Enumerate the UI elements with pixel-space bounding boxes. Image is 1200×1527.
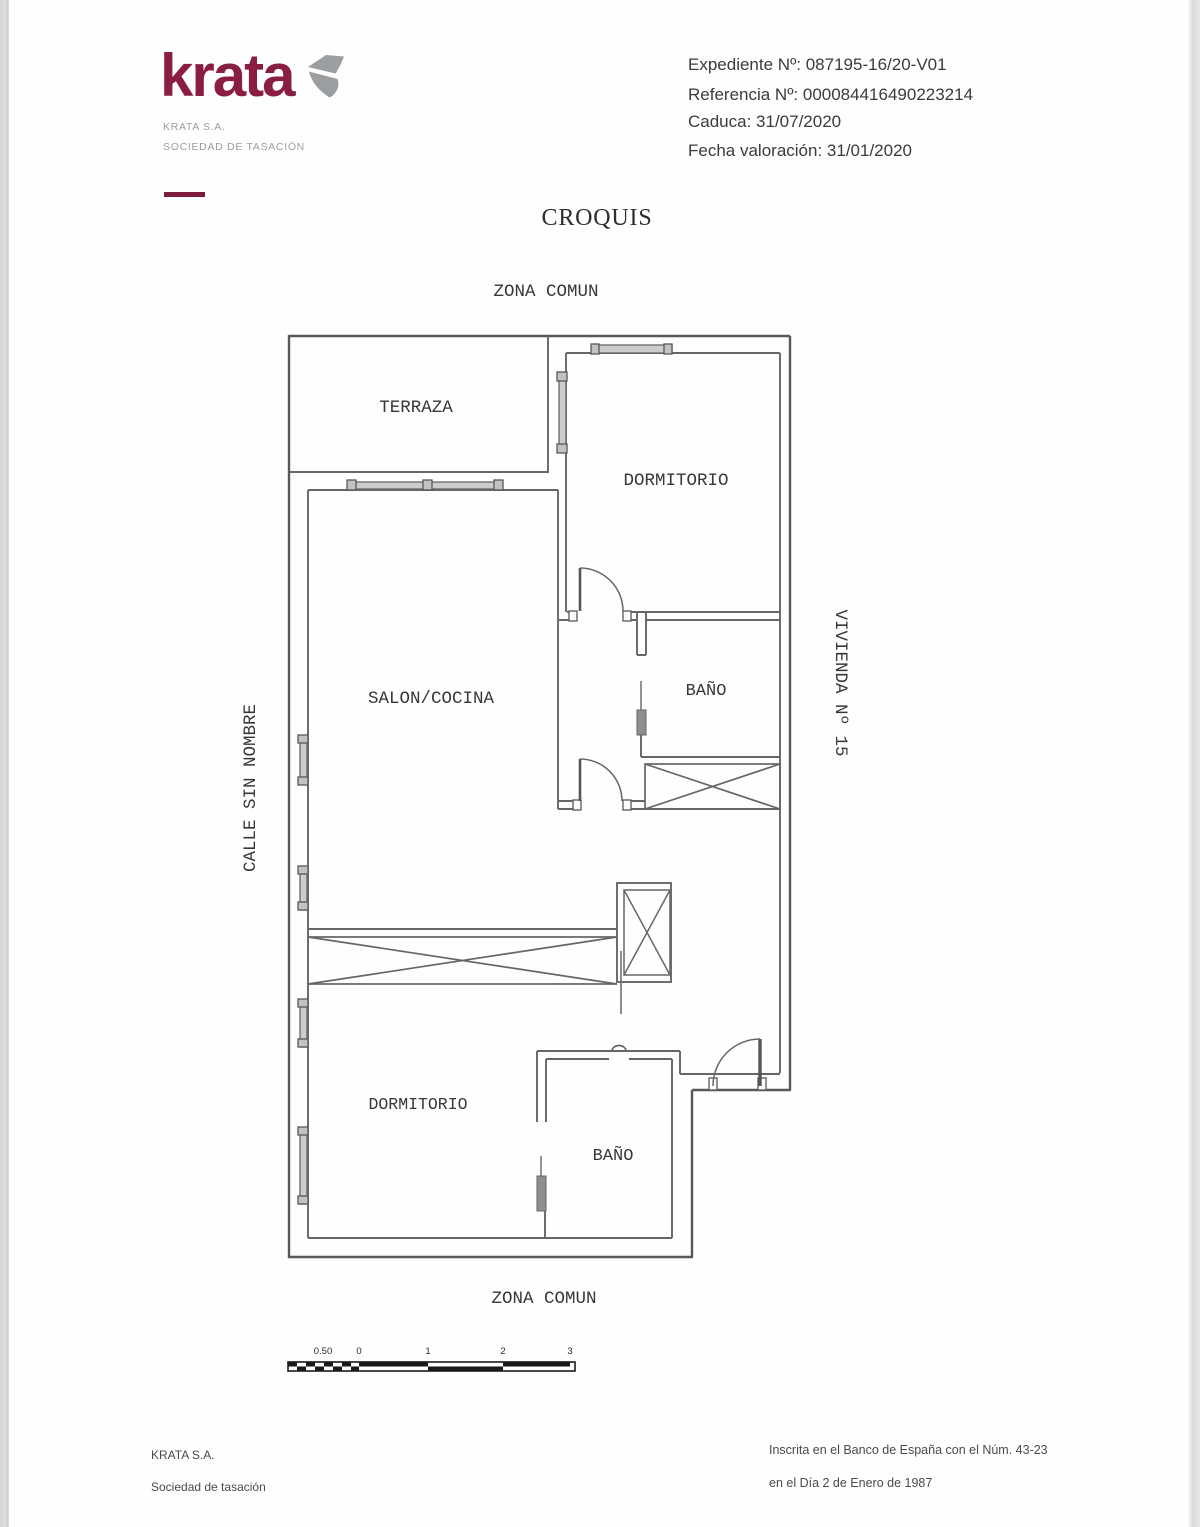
svg-text:DORMITORIO: DORMITORIO [623,471,728,491]
svg-text:DORMITORIO: DORMITORIO [368,1095,467,1114]
svg-text:SALON/COCINA: SALON/COCINA [368,689,495,709]
svg-text:ZONA COMUN: ZONA COMUN [493,282,598,302]
svg-text:VIVIENDA Nº 15: VIVIENDA Nº 15 [830,609,850,756]
svg-text:CALLE SIN NOMBRE: CALLE SIN NOMBRE [241,704,261,872]
svg-text:BAÑO: BAÑO [593,1146,634,1166]
svg-text:ZONA COMUN: ZONA COMUN [491,1289,596,1309]
svg-text:TERRAZA: TERRAZA [379,398,453,418]
svg-text:3: 3 [567,1346,572,1357]
svg-text:2: 2 [500,1346,505,1357]
svg-text:BAÑO: BAÑO [686,681,727,701]
svg-text:1: 1 [425,1346,430,1357]
svg-text:0.50: 0.50 [314,1346,333,1357]
svg-text:0: 0 [356,1346,361,1357]
